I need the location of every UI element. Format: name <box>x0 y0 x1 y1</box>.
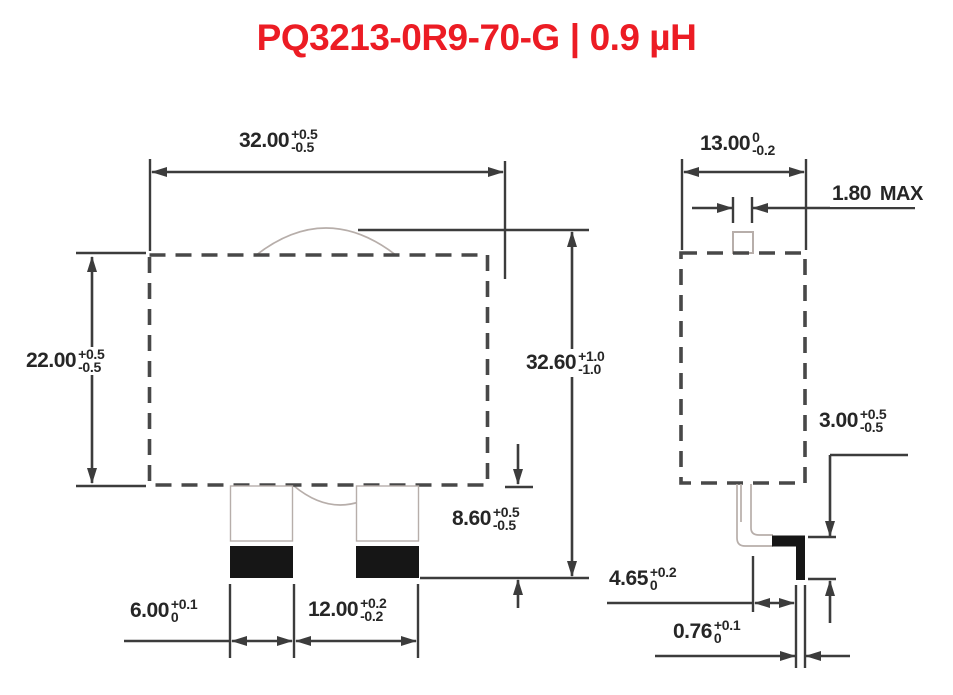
front-width-dimension: 32.00 +0.5 -0.5 <box>237 127 320 155</box>
front-right-leg <box>357 486 419 541</box>
front-left-pad <box>230 546 293 578</box>
side-lead-thickness-dimension: 0.76 +0.1 0 <box>671 618 742 646</box>
front-pad-width-dimension: 6.00 +0.1 0 <box>128 597 199 625</box>
front-extension-lines <box>76 159 589 658</box>
side-foot-length-dimension: 4.65 +0.2 0 <box>607 565 678 593</box>
front-body-height-dimension: 22.00 +0.5 -0.5 <box>24 347 107 375</box>
side-body-outline <box>681 253 805 483</box>
side-lead-wire <box>737 484 773 546</box>
mechanical-drawing <box>0 0 953 695</box>
side-foot <box>772 536 805 581</box>
front-pin-length-dimension: 8.60 +0.5 -0.5 <box>450 505 521 533</box>
datasheet-drawing-page: PQ3213-0R9-70-G|0.9 µH <box>0 0 953 695</box>
front-total-height-dimension: 32.60 +1.0 -1.0 <box>524 349 607 377</box>
front-body-outline <box>150 255 488 485</box>
side-extension-lines <box>682 159 836 668</box>
side-tab-width-dimension: 1.80 MAX <box>830 181 925 207</box>
front-left-leg <box>231 486 293 541</box>
side-foot-height-dimension: 3.00 +0.5 -0.5 <box>817 407 888 435</box>
front-view <box>76 159 589 658</box>
front-top-winding-arc <box>255 228 397 256</box>
side-depth-dimension: 13.00 0 -0.2 <box>698 130 777 158</box>
front-right-pad <box>356 546 419 578</box>
front-pad-pitch-dimension: 12.00 +0.2 -0.2 <box>306 596 389 624</box>
side-core-tab <box>733 232 753 253</box>
front-dimension-lines <box>92 172 572 641</box>
